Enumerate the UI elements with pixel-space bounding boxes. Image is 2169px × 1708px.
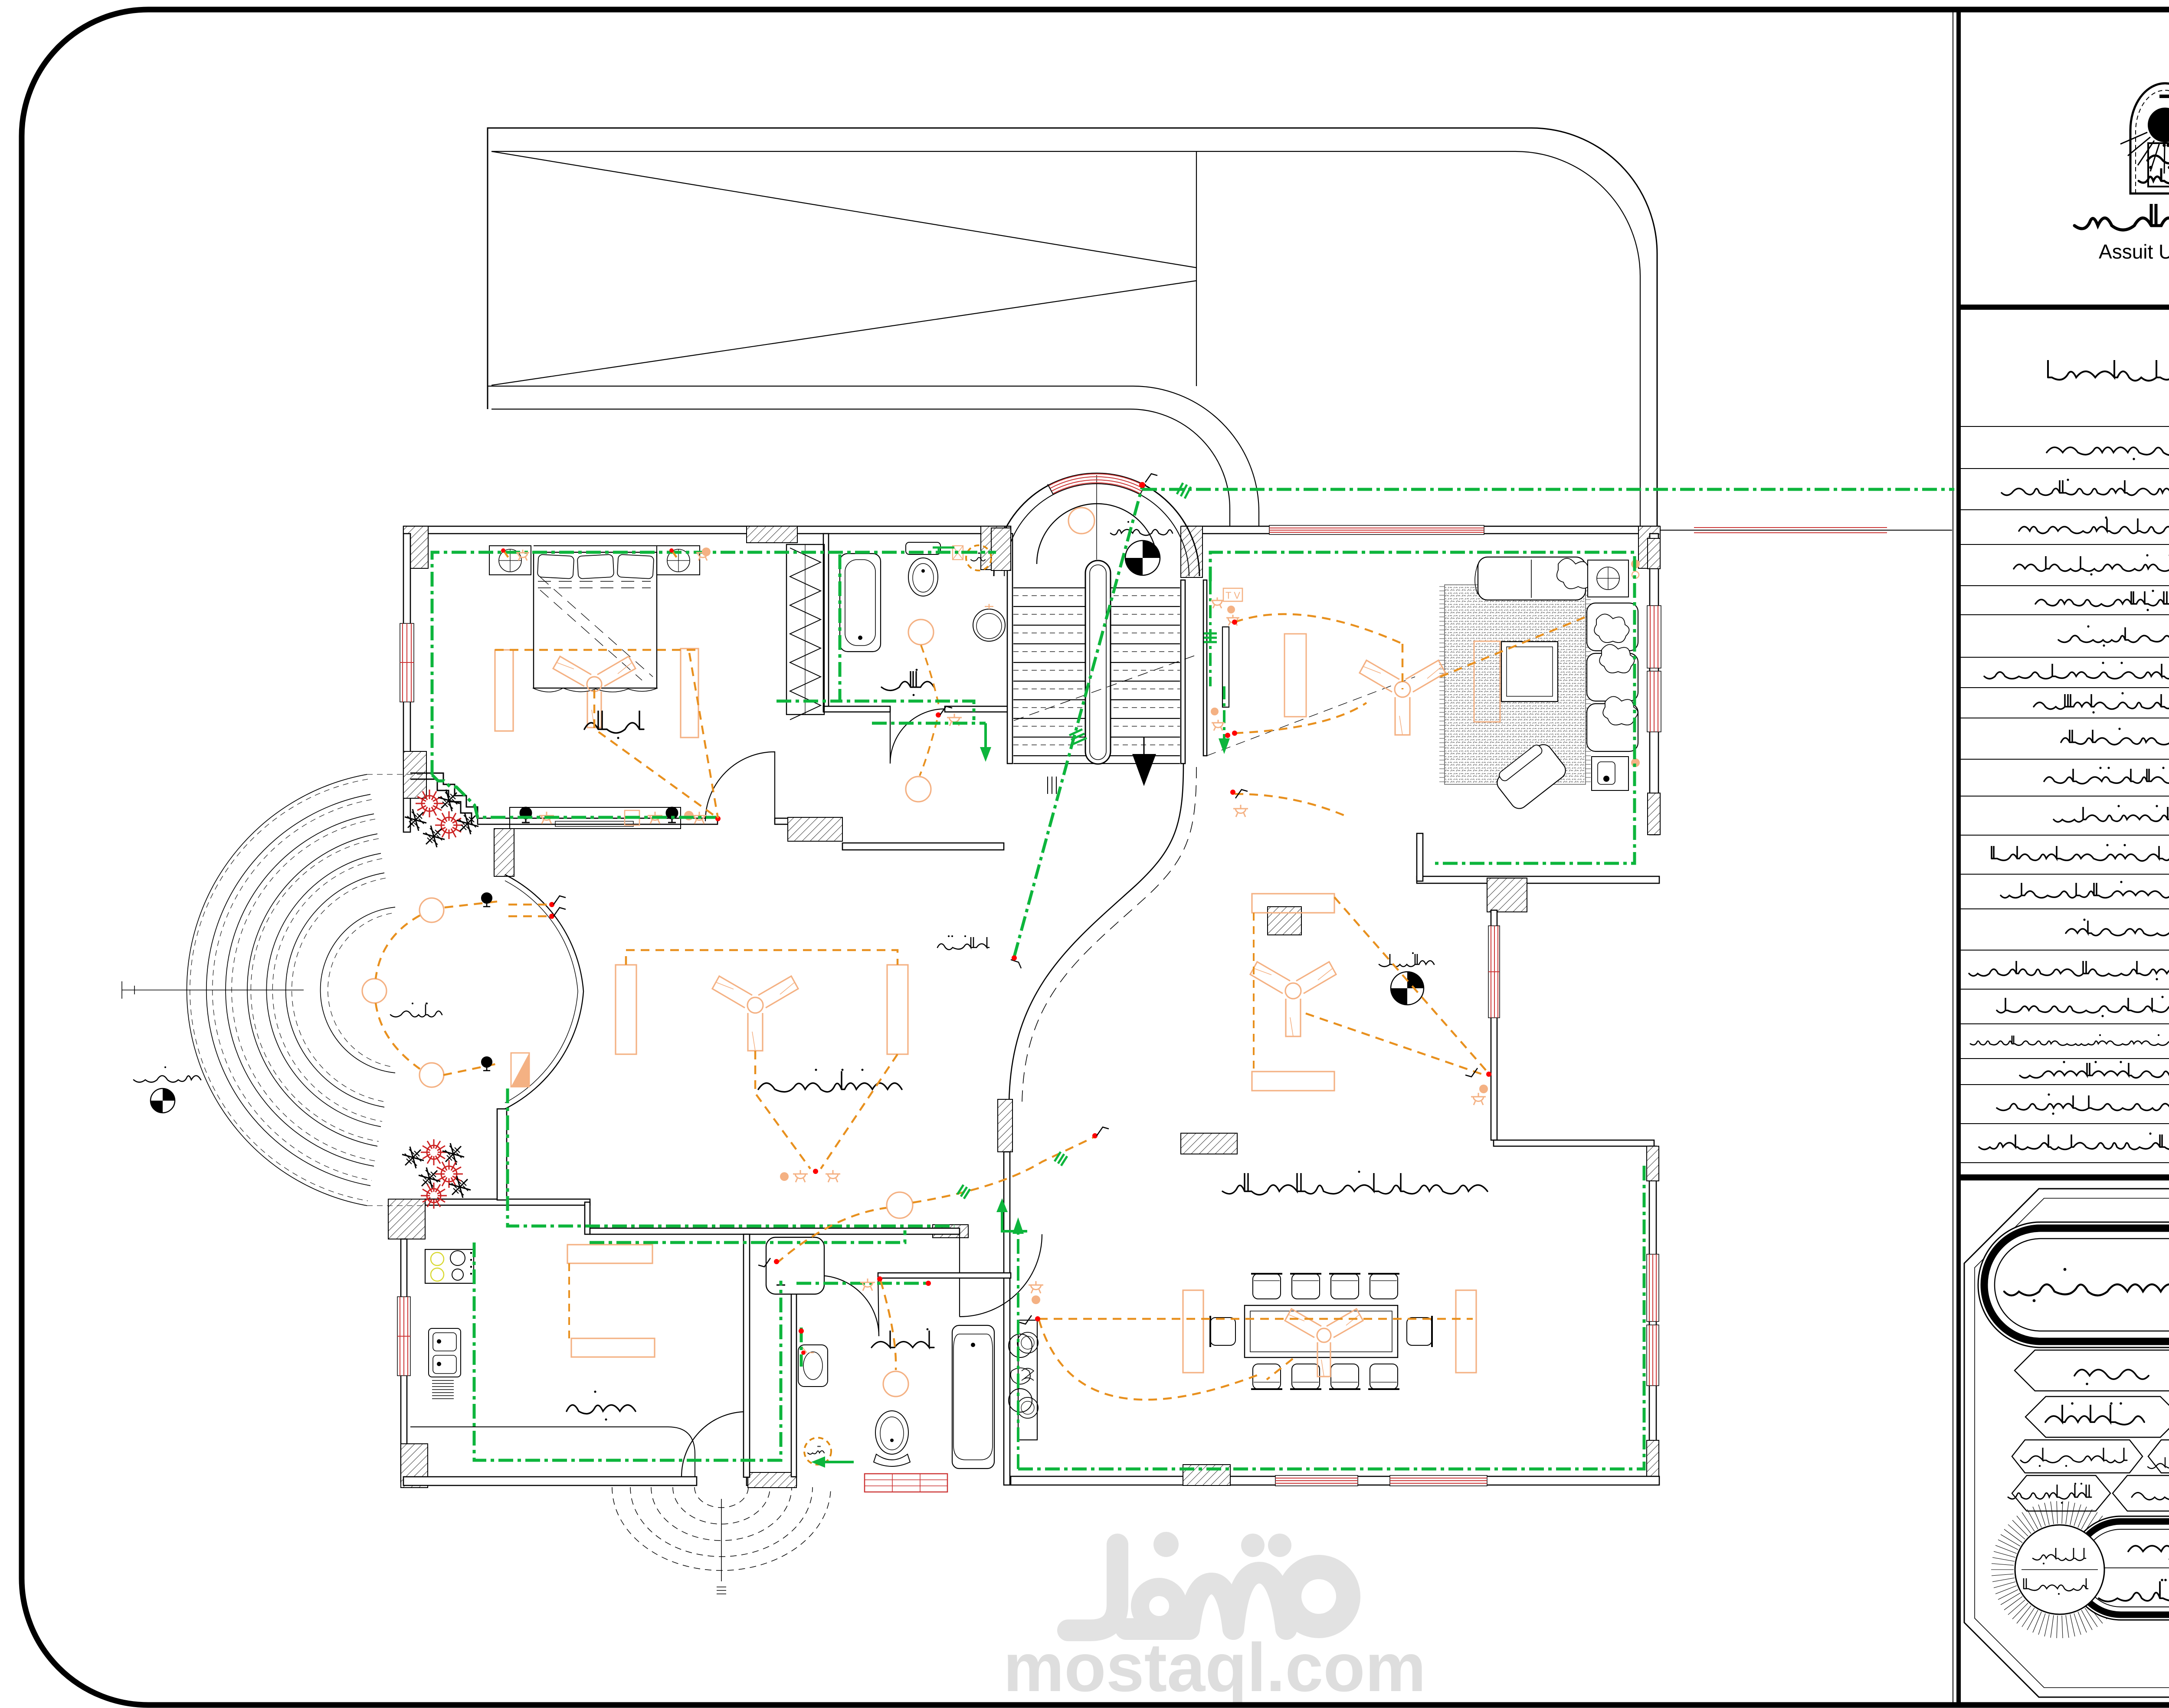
svg-text:T V: T V <box>1225 590 1240 601</box>
svg-text:Assuit University: Assuit University <box>2099 240 2169 263</box>
svg-text:mostaql.com: mostaql.com <box>1003 1629 1426 1706</box>
